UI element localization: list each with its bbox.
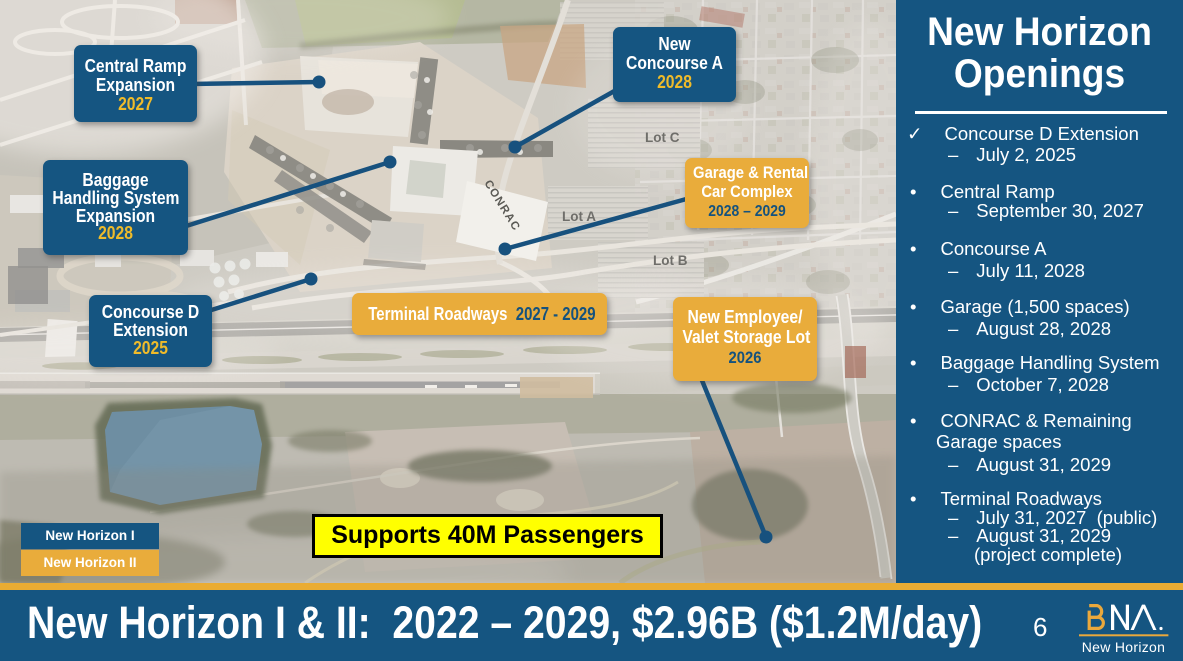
svg-text:Lot B: Lot B: [653, 253, 688, 268]
svg-text:Lot C: Lot C: [645, 130, 680, 145]
svg-text:Lot A: Lot A: [562, 209, 596, 224]
svg-text:New Horizon: New Horizon: [1082, 639, 1165, 655]
